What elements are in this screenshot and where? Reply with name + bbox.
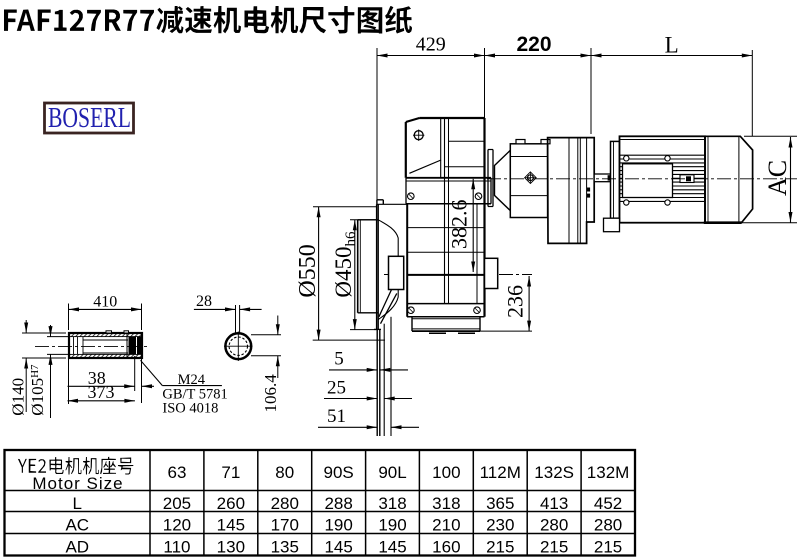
svg-text:452: 452 [594, 494, 622, 513]
svg-text:L: L [665, 33, 679, 58]
svg-text:132S: 132S [534, 463, 574, 482]
svg-text:170: 170 [271, 516, 299, 535]
svg-text:BOSERL: BOSERL [48, 101, 131, 134]
svg-text:220: 220 [516, 33, 551, 56]
svg-text:90S: 90S [324, 463, 354, 482]
svg-text:288: 288 [324, 494, 352, 513]
svg-text:Ø550: Ø550 [295, 244, 321, 297]
svg-text:373: 373 [88, 382, 115, 402]
svg-text:160: 160 [432, 537, 460, 556]
svg-text:365: 365 [486, 494, 514, 513]
svg-text:51: 51 [327, 406, 346, 427]
svg-text:230: 230 [486, 516, 514, 535]
svg-text:280: 280 [540, 516, 568, 535]
svg-text:215: 215 [540, 537, 568, 556]
svg-text:71: 71 [221, 463, 240, 482]
svg-text:215: 215 [594, 537, 622, 556]
svg-text:Ø105H7: Ø105H7 [28, 364, 47, 416]
svg-text:135: 135 [271, 537, 299, 556]
svg-text:280: 280 [271, 494, 299, 513]
svg-text:M24: M24 [178, 372, 206, 388]
svg-text:210: 210 [432, 516, 460, 535]
svg-text:25: 25 [327, 377, 346, 398]
svg-text:AC: AC [65, 516, 89, 535]
svg-text:429: 429 [416, 33, 446, 55]
svg-text:413: 413 [540, 494, 568, 513]
svg-text:145: 145 [324, 537, 352, 556]
svg-text:63: 63 [167, 463, 186, 482]
svg-text:318: 318 [378, 494, 406, 513]
svg-text:Ø450h6: Ø450h6 [331, 231, 359, 298]
svg-text:5: 5 [334, 349, 344, 370]
svg-text:236: 236 [503, 285, 528, 318]
svg-text:106.4: 106.4 [261, 374, 280, 413]
svg-text:90L: 90L [378, 463, 406, 482]
svg-text:28: 28 [196, 293, 212, 310]
svg-text:80: 80 [275, 463, 294, 482]
svg-text:382.6: 382.6 [447, 200, 472, 250]
svg-text:110: 110 [163, 537, 190, 556]
svg-text:AD: AD [65, 537, 89, 556]
svg-text:Motor Size: Motor Size [32, 474, 123, 493]
svg-text:112M: 112M [480, 463, 521, 482]
svg-text:260: 260 [217, 494, 245, 513]
svg-text:280: 280 [594, 516, 622, 535]
svg-text:205: 205 [163, 494, 191, 513]
svg-text:120: 120 [163, 516, 191, 535]
svg-text:100: 100 [432, 463, 460, 482]
svg-text:410: 410 [93, 293, 117, 310]
svg-text:L: L [73, 494, 82, 513]
svg-text:190: 190 [324, 516, 352, 535]
svg-text:ISO 4018: ISO 4018 [162, 400, 218, 416]
svg-text:145: 145 [378, 537, 406, 556]
svg-text:190: 190 [378, 516, 406, 535]
svg-text:132M: 132M [587, 463, 630, 482]
svg-text:AC: AC [763, 160, 792, 196]
svg-text:145: 145 [217, 516, 245, 535]
svg-text:318: 318 [432, 494, 460, 513]
svg-text:130: 130 [217, 537, 245, 556]
svg-text:215: 215 [486, 537, 514, 556]
svg-text:Ø140: Ø140 [8, 378, 27, 416]
